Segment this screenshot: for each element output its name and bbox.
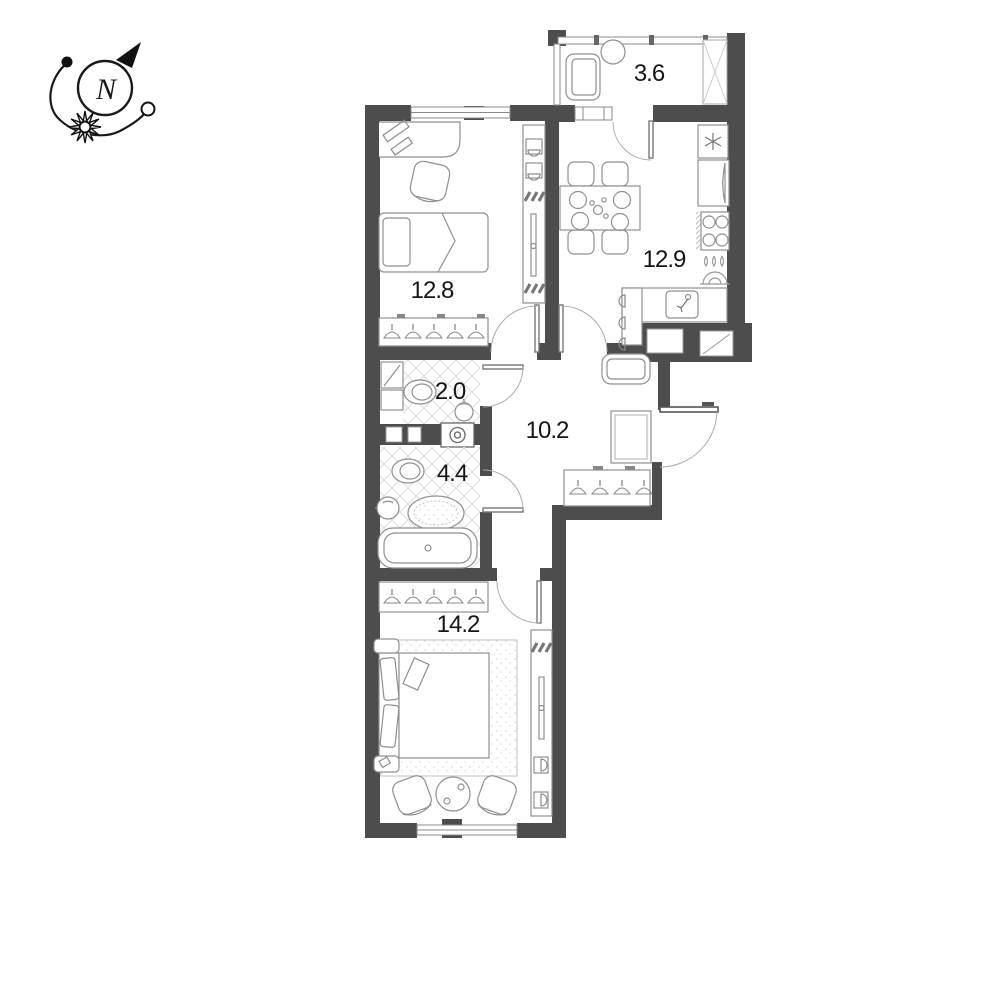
room-area-label: 12.8 (411, 277, 454, 304)
room-area-label: 12.9 (643, 246, 686, 273)
compass-open-dot (142, 103, 155, 116)
shaft-icon (386, 427, 402, 442)
room-area-label: 14.2 (437, 611, 480, 638)
room-balcony (566, 40, 625, 100)
room-hallway (564, 354, 652, 506)
toilet-icon (404, 380, 436, 404)
sun-symbol-icon (69, 111, 101, 143)
double-bed-icon (379, 653, 489, 758)
shaft-icon (408, 427, 421, 442)
wardrobe-icon (379, 582, 488, 612)
wardrobe-icon (379, 314, 488, 346)
round-table-icon (601, 40, 625, 64)
closet-column-icon (531, 630, 552, 816)
desk-chair-icon (408, 160, 451, 205)
armchair-icon (390, 773, 434, 819)
bathtub-icon (378, 528, 477, 568)
room-area-label: 4.4 (437, 460, 468, 487)
shaft-icon (700, 331, 733, 356)
sofa-icon (566, 54, 600, 100)
nightstand-icon (374, 639, 399, 653)
balcony-shaft-icon (703, 40, 727, 104)
bench-icon (602, 354, 650, 384)
room-area-label: 2.0 (435, 378, 466, 405)
nightstand-icon (374, 756, 399, 772)
window-icon (411, 107, 510, 118)
window-icon (575, 107, 612, 120)
kitchen-sink-icon (666, 291, 698, 318)
room-area-label: 10.2 (526, 417, 569, 444)
shaft-icon (647, 329, 683, 353)
toilet-icon (392, 459, 424, 483)
rug-icon (611, 411, 651, 463)
kitchen-door (559, 305, 607, 352)
bath-rug-icon (408, 496, 464, 530)
hallway-wardrobe-icon (564, 466, 652, 506)
compass-dot (62, 57, 73, 68)
bed-icon (379, 213, 488, 272)
desk-icon (379, 120, 460, 157)
bedroom2-door (497, 581, 541, 623)
floor-plan-svg: N (0, 0, 1000, 1000)
balcony-door (613, 121, 653, 160)
shaft-icon (381, 362, 403, 410)
armchair-icon (474, 773, 518, 819)
wc-door (483, 365, 523, 407)
closet-column-icon (523, 125, 545, 303)
fridge-icon (698, 125, 728, 158)
floor-plan-page: N (0, 0, 1000, 1000)
coffee-table-icon (436, 777, 470, 811)
bedroom1-door (491, 305, 539, 352)
compass: N (50, 42, 154, 143)
entrance-door-icon (660, 402, 718, 467)
kitchen-cabinet-icon (698, 160, 729, 206)
bathroom-door (483, 470, 523, 512)
washing-machine-icon (441, 423, 474, 447)
room-kitchen (560, 125, 730, 350)
room-area-label: 3.6 (634, 60, 665, 87)
stove-icon (696, 212, 729, 250)
compass-north-label: N (95, 73, 118, 106)
drainer-icon (700, 256, 730, 284)
room-bedroom-1 (379, 120, 545, 346)
window-icon (417, 825, 517, 835)
